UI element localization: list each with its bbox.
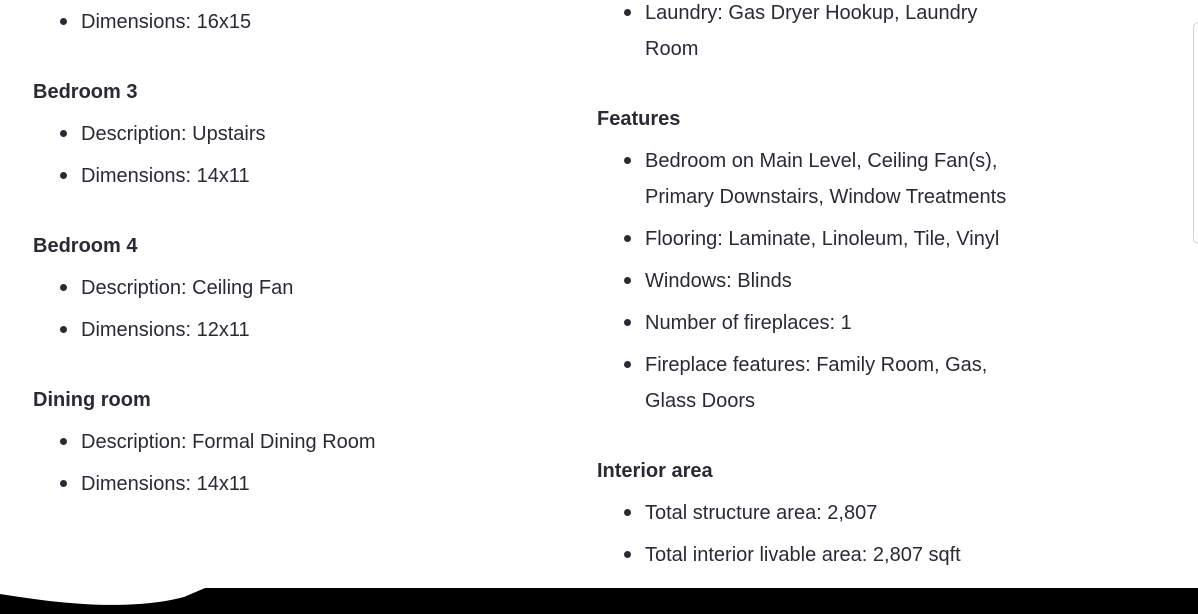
list-item: Description: Upstairs (81, 116, 533, 152)
laundry-fact-list: Laundry: Gas Dryer Hookup, Laundry Room (597, 0, 1022, 67)
list-item: Dimensions: 14x11 (81, 466, 533, 502)
details-column-right: Laundry: Gas Dryer Hookup, Laundry Room … (597, 0, 1022, 579)
features-fact-list: Bedroom on Main Level, Ceiling Fan(s), P… (597, 143, 1022, 419)
list-item: Description: Formal Dining Room (81, 424, 533, 460)
heading-bedroom-4: Bedroom 4 (33, 232, 533, 260)
heading-features: Features (597, 105, 1022, 133)
list-item: Description: Ceiling Fan (81, 270, 533, 306)
list-item: Dimensions: 16x15 (81, 4, 533, 40)
room-fact-list: Dimensions: 16x15 (33, 4, 533, 40)
list-item: Windows: Blinds (645, 263, 1022, 299)
bottom-bar-shape (0, 588, 1198, 614)
dining-room-fact-list: Description: Formal Dining Room Dimensio… (33, 424, 533, 502)
interior-area-fact-list: Total structure area: 2,807 Total interi… (597, 495, 1022, 573)
list-item: Dimensions: 12x11 (81, 312, 533, 348)
list-item: Flooring: Laminate, Linoleum, Tile, Viny… (645, 221, 1022, 257)
list-item: Number of fireplaces: 1 (645, 305, 1022, 341)
list-item: Total structure area: 2,807 (645, 495, 1022, 531)
list-item: Total interior livable area: 2,807 sqft (645, 537, 1022, 573)
bedroom-3-fact-list: Description: Upstairs Dimensions: 14x11 (33, 116, 533, 194)
heading-bedroom-3: Bedroom 3 (33, 78, 533, 106)
bottom-bar (0, 588, 1198, 614)
property-details-page: Dimensions: 16x15 Bedroom 3 Description:… (0, 0, 1198, 614)
list-item: Laundry: Gas Dryer Hookup, Laundry Room (645, 0, 1022, 67)
bedroom-4-fact-list: Description: Ceiling Fan Dimensions: 12x… (33, 270, 533, 348)
list-item: Dimensions: 14x11 (81, 158, 533, 194)
heading-dining-room: Dining room (33, 386, 533, 414)
list-item: Fireplace features: Family Room, Gas, Gl… (645, 347, 1022, 419)
heading-interior-area: Interior area (597, 457, 1022, 485)
list-item: Bedroom on Main Level, Ceiling Fan(s), P… (645, 143, 1022, 215)
details-column-left: Dimensions: 16x15 Bedroom 3 Description:… (33, 4, 533, 508)
scrollbar-thumb[interactable] (1193, 22, 1198, 244)
